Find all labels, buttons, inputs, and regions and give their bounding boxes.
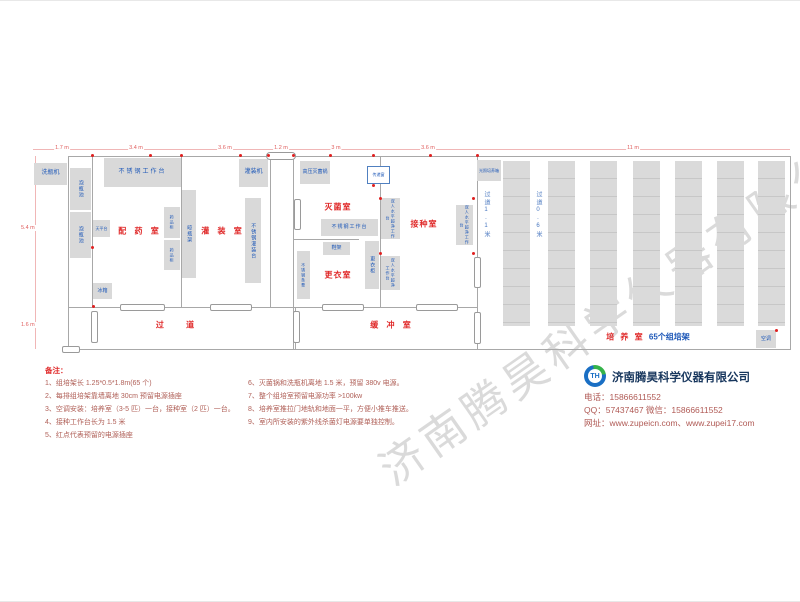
note-item-7: 7、整个组培室预留电源功率 >100kw [248, 391, 362, 401]
dim-label: 1.2 m [273, 145, 289, 151]
socket-dot [472, 197, 475, 200]
cultivation-rack-count: 65个组培架 [649, 333, 690, 342]
socket-dot [180, 154, 183, 157]
room-label-changing: 更衣室 [325, 270, 352, 281]
equipment-autoclave: 高压灭菌锅 [300, 161, 330, 184]
dim-label: 3.6 m [420, 145, 436, 151]
door-leaf-peiyang-top [474, 257, 481, 288]
socket-dot [91, 154, 94, 157]
company-website: 网址：www.zupeicn.com、www.zupei17.com [584, 417, 755, 429]
socket-dot [92, 305, 95, 308]
equipment-steel-filling-table: 不锈钢灌装台 [245, 198, 261, 283]
note-item-3: 3、空调安装：培养室（3-5 匹）一台，接种室（2 匹）一台。 [45, 404, 235, 414]
equipment-steel-worktable-1: 不锈钢工作台 [104, 158, 181, 187]
equipment-air-conditioner: 空调 [756, 330, 776, 348]
room-label-filling: 灌 装 室 [201, 226, 244, 237]
dim-label: 3 m [330, 145, 341, 151]
dim-label: 11 m [626, 145, 640, 151]
room-label-corridor: 过 道 [156, 320, 204, 331]
door-leaf-guodao-mid [293, 311, 300, 343]
note-item-5: 5、红点代表预留的电源插座 [45, 430, 133, 440]
wall-top-right [477, 156, 791, 157]
wall-bottom [68, 349, 791, 350]
socket-dot [372, 184, 375, 187]
socket-dot [379, 252, 382, 255]
culture-rack [548, 161, 575, 326]
door-leaf-miejun [294, 199, 301, 230]
notes-title: 备注： [45, 365, 68, 376]
equipment-pass-through-window: 传递窗 [367, 166, 390, 184]
aisle-label-1-1m: 过道1.1米 [482, 191, 491, 271]
culture-rack [758, 161, 785, 326]
equipment-laminar-flow-bench-1: 双人水平超净工作台 [381, 198, 400, 239]
door-leaf-peiyang-bottom [474, 312, 481, 344]
equipment-laminar-flow-bench-3: 双人水平超净工作台 [456, 205, 473, 245]
socket-dot [476, 154, 479, 157]
room-label-sterilization: 灭菌室 [325, 202, 352, 213]
equipment-light-incubator: 光照培养箱 [477, 160, 501, 181]
equipment-laminar-flow-bench-2: 双人水平超净工作台 [381, 256, 400, 290]
culture-rack [717, 161, 744, 326]
culture-rack [590, 161, 617, 326]
culture-rack [675, 161, 702, 326]
sliding-door-jiezhong [416, 304, 458, 311]
wall-guanzhuang-passage [270, 156, 271, 308]
wall-left-outer [68, 156, 69, 350]
socket-dot [775, 329, 778, 332]
floor-plan: 1.7 m 3.4 m 3.6 m 1.2 m 3 m 3.6 m 11 m 5… [0, 1, 800, 601]
wall-partition-miejun-gengyi [293, 239, 359, 240]
company-name: 济南腾昊科学仪器有限公司 [612, 369, 750, 385]
note-item-2: 2、每排组培架靠墙离地 30cm 预留电源插座 [45, 391, 182, 401]
wall-top-mid [293, 156, 478, 157]
socket-dot [329, 154, 332, 157]
socket-dot [239, 154, 242, 157]
door-exit-bottom-left [62, 346, 80, 353]
socket-dot [472, 252, 475, 255]
dim-label: 1.7 m [54, 145, 70, 151]
note-item-8: 8、培养室推拉门地轨和地面一平，方便小推车推送。 [248, 404, 413, 414]
socket-dot [429, 154, 432, 157]
equipment-medicine-cabinet-1: 药品柜 [164, 207, 180, 238]
room-label-inoculation: 接种室 [411, 219, 438, 230]
sliding-door-peiyao [120, 304, 165, 311]
socket-dot [267, 154, 270, 157]
dimension-line-top [33, 149, 790, 150]
company-logo-text: TH [588, 369, 602, 383]
equipment-balance-table: 天平台 [93, 220, 110, 237]
wall-right-outer [790, 156, 791, 350]
equipment-medicine-cabinet-2: 药品柜 [164, 240, 180, 270]
equipment-bottle-washer: 洗瓶机 [34, 163, 67, 185]
equipment-steel-bench: 不锈钢条凳 [297, 251, 310, 299]
note-item-4: 4、接种工作台长为 1.5 米 [45, 417, 126, 427]
socket-dot [379, 197, 382, 200]
dim-label: 5.4 m [20, 225, 36, 231]
socket-dot [91, 246, 94, 249]
dim-label: 3.4 m [128, 145, 144, 151]
note-item-6: 6、灭菌锅和洗瓶机离地 1.5 米，预留 380v 电源。 [248, 378, 404, 388]
note-item-9: 9、室内所安装的紫外线杀菌灯电源要单独控制。 [248, 417, 399, 427]
equipment-filling-machine: 灌装机 [239, 159, 268, 187]
equipment-soak-pool-2: 泡瓶池 [70, 212, 91, 258]
dim-label: 3.6 m [217, 145, 233, 151]
sliding-door-guanzhuang [210, 304, 252, 311]
sliding-door-gengyi [322, 304, 364, 311]
note-item-1: 1、组培架长 1.25*0.5*1.8m(65 个) [45, 378, 152, 388]
company-qq-wechat: QQ：57437467 微信：15866611552 [584, 404, 723, 416]
company-logo: TH [584, 365, 606, 387]
cultivation-name: 培 养 室 [606, 333, 644, 342]
equipment-shoe-rack: 鞋架 [323, 242, 350, 255]
socket-dot [292, 154, 295, 157]
aisle-label-0-6m: 过道0.6米 [534, 191, 543, 271]
equipment-soak-pool-1: 泡瓶池 [70, 168, 91, 210]
equipment-wardrobe: 更衣柜 [365, 241, 379, 289]
door-leaf-guodao-left [91, 311, 98, 343]
dim-label: 1.6 m [20, 322, 36, 328]
company-phone: 电话：15866611552 [584, 391, 661, 403]
room-label-preparation: 配 药 室 [118, 226, 161, 237]
culture-rack [633, 161, 660, 326]
equipment-bottle-rack: 晾瓶架 [182, 190, 196, 278]
room-label-buffer: 缓 冲 室 [370, 320, 413, 331]
culture-rack [503, 161, 530, 326]
socket-dot [149, 154, 152, 157]
equipment-steel-worktable-2: 不锈钢工作台 [321, 219, 378, 236]
room-label-cultivation: 培 养 室 65个组培架 [606, 332, 690, 343]
equipment-refrigerator: 冰箱 [93, 283, 112, 299]
socket-dot [372, 154, 375, 157]
